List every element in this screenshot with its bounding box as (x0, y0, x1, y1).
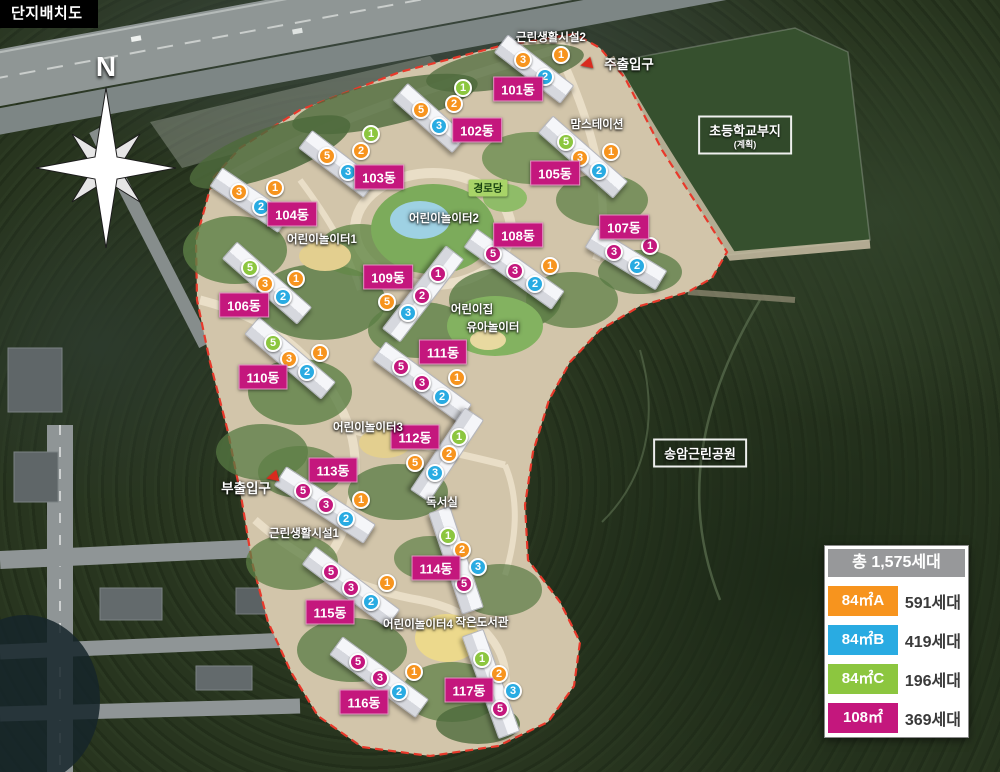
unit-marker-111동-2: 2 (433, 388, 451, 406)
entrance-label: 주출입구 (604, 53, 654, 73)
unit-marker-112동-1: 1 (450, 428, 468, 446)
building-label-103동: 103동 (354, 165, 404, 190)
legend-panel: 총 1,575세대 84㎡A591세대84㎡B419세대84㎡C196세대108… (824, 545, 969, 738)
area-label-subtext: (계획) (709, 140, 781, 150)
unit-marker-115동-3: 3 (342, 579, 360, 597)
unit-marker-117동-3: 3 (504, 682, 522, 700)
unit-marker-115동-5: 5 (322, 563, 340, 581)
unit-marker-110동-2: 2 (298, 363, 316, 381)
unit-marker-102동-3: 3 (430, 117, 448, 135)
facility-label: 어린이놀이터1 (287, 231, 357, 247)
unit-marker-106동-5: 5 (241, 259, 259, 277)
unit-marker-107동-2: 2 (628, 257, 646, 275)
unit-marker-111동-5: 5 (392, 358, 410, 376)
unit-marker-107동-1: 1 (641, 237, 659, 255)
unit-marker-113동-5: 5 (294, 482, 312, 500)
building-label-107동: 107동 (599, 215, 649, 240)
building-label-102동: 102동 (452, 118, 502, 143)
unit-marker-101동-1: 1 (552, 46, 570, 64)
unit-marker-109동-2: 2 (413, 287, 431, 305)
facility-label: 맘스테이션 (571, 116, 624, 132)
unit-marker-116동-2: 2 (390, 683, 408, 701)
legend-row: 84㎡C196세대 (828, 664, 965, 694)
legend-rows: 84㎡A591세대84㎡B419세대84㎡C196세대108㎡369세대 (828, 586, 965, 733)
legend-value: 369세대 (898, 706, 965, 730)
compass-icon: N (30, 40, 190, 270)
legend-value: 419세대 (898, 628, 965, 652)
facility-label: 근린생활시설1 (269, 525, 339, 541)
unit-marker-114동-1: 1 (439, 527, 457, 545)
facility-label: 어린이집 (451, 301, 493, 317)
legend-row: 84㎡B419세대 (828, 625, 965, 655)
entrance-label: 부출입구 (221, 477, 271, 497)
building-label-114동: 114동 (412, 556, 461, 581)
area-label: 초등학교부지(계획) (698, 116, 792, 155)
unit-marker-112동-5: 5 (406, 454, 424, 472)
legend-row: 108㎡369세대 (828, 703, 965, 733)
building-label-101동: 101동 (493, 77, 543, 102)
unit-marker-110동-5: 5 (264, 334, 282, 352)
site-plan-map: 312101동5123102동5123103동312104동5312105동53… (0, 0, 1000, 772)
senior-center-label: 경로당 (469, 180, 508, 197)
page-title: 단지배치도 (0, 0, 98, 28)
unit-marker-109동-1: 1 (429, 265, 447, 283)
building-label-113동: 113동 (309, 458, 358, 483)
unit-marker-113동-1: 1 (352, 491, 370, 509)
unit-marker-113동-3: 3 (317, 496, 335, 514)
building-label-106동: 106동 (219, 293, 269, 318)
unit-marker-103동-5: 5 (318, 147, 336, 165)
legend-swatch-84㎡B: 84㎡B (828, 625, 898, 655)
unit-marker-102동-1: 1 (454, 79, 472, 97)
legend-value: 591세대 (898, 589, 965, 613)
unit-marker-114동-3: 3 (469, 558, 487, 576)
unit-marker-106동-1: 1 (287, 270, 305, 288)
facility-label: 어린이놀이터2 (409, 210, 479, 226)
building-label-117동: 117동 (445, 678, 494, 703)
unit-marker-112동-3: 3 (426, 464, 444, 482)
unit-marker-108동-5: 5 (484, 245, 502, 263)
unit-marker-116동-3: 3 (371, 669, 389, 687)
unit-marker-102동-2: 2 (445, 95, 463, 113)
area-label-text: 초등학교부지 (709, 124, 781, 139)
facility-label: 어린이놀이터4 (383, 616, 453, 632)
building-label-109동: 109동 (363, 265, 413, 290)
building-label-115동: 115동 (306, 600, 355, 625)
building-label-108동: 108동 (493, 223, 543, 248)
unit-marker-108동-2: 2 (526, 275, 544, 293)
facility-label: 독서실 (426, 494, 458, 510)
unit-marker-116동-5: 5 (349, 653, 367, 671)
unit-marker-117동-1: 1 (473, 650, 491, 668)
unit-marker-117동-5: 5 (491, 700, 509, 718)
unit-marker-103동-1: 1 (362, 125, 380, 143)
unit-marker-101동-3: 3 (514, 51, 532, 69)
unit-marker-115동-1: 1 (378, 574, 396, 592)
legend-swatch-108㎡: 108㎡ (828, 703, 898, 733)
building-label-110동: 110동 (239, 365, 288, 390)
unit-marker-111동-3: 3 (413, 374, 431, 392)
unit-marker-106동-2: 2 (274, 288, 292, 306)
facility-label: 근린생활시설2 (516, 29, 586, 45)
unit-marker-112동-2: 2 (440, 445, 458, 463)
unit-marker-115동-2: 2 (362, 593, 380, 611)
facility-label: 작은도서관 (456, 614, 509, 630)
building-label-104동: 104동 (267, 202, 317, 227)
area-label-text: 송암근린공원 (664, 447, 736, 462)
unit-marker-105동-2: 2 (590, 162, 608, 180)
legend-row: 84㎡A591세대 (828, 586, 965, 616)
facility-label: 유아놀이터 (467, 319, 520, 335)
unit-marker-110동-1: 1 (311, 344, 329, 362)
facility-label: 어린이놀이터3 (333, 419, 403, 435)
legend-swatch-84㎡A: 84㎡A (828, 586, 898, 616)
compass-north-label: N (96, 51, 116, 82)
building-label-105동: 105동 (530, 161, 580, 186)
unit-marker-107동-3: 3 (605, 243, 623, 261)
unit-marker-106동-3: 3 (256, 275, 274, 293)
unit-marker-104동-3: 3 (230, 183, 248, 201)
unit-marker-108동-1: 1 (541, 257, 559, 275)
unit-marker-105동-5: 5 (557, 133, 575, 151)
building-label-116동: 116동 (340, 690, 389, 715)
area-label: 송암근린공원 (653, 439, 747, 468)
unit-marker-108동-3: 3 (506, 262, 524, 280)
building-label-111동: 111동 (419, 340, 467, 365)
unit-marker-104동-1: 1 (266, 179, 284, 197)
unit-marker-116동-1: 1 (405, 663, 423, 681)
entrance-flag-icon (579, 57, 594, 72)
unit-marker-103동-2: 2 (352, 142, 370, 160)
legend-total: 총 1,575세대 (828, 549, 965, 577)
unit-marker-105동-1: 1 (602, 143, 620, 161)
unit-marker-113동-2: 2 (337, 510, 355, 528)
legend-value: 196세대 (898, 667, 965, 691)
unit-marker-109동-5: 5 (378, 293, 396, 311)
unit-marker-102동-5: 5 (412, 101, 430, 119)
legend-swatch-84㎡C: 84㎡C (828, 664, 898, 694)
unit-marker-111동-1: 1 (448, 369, 466, 387)
unit-marker-109동-3: 3 (399, 304, 417, 322)
